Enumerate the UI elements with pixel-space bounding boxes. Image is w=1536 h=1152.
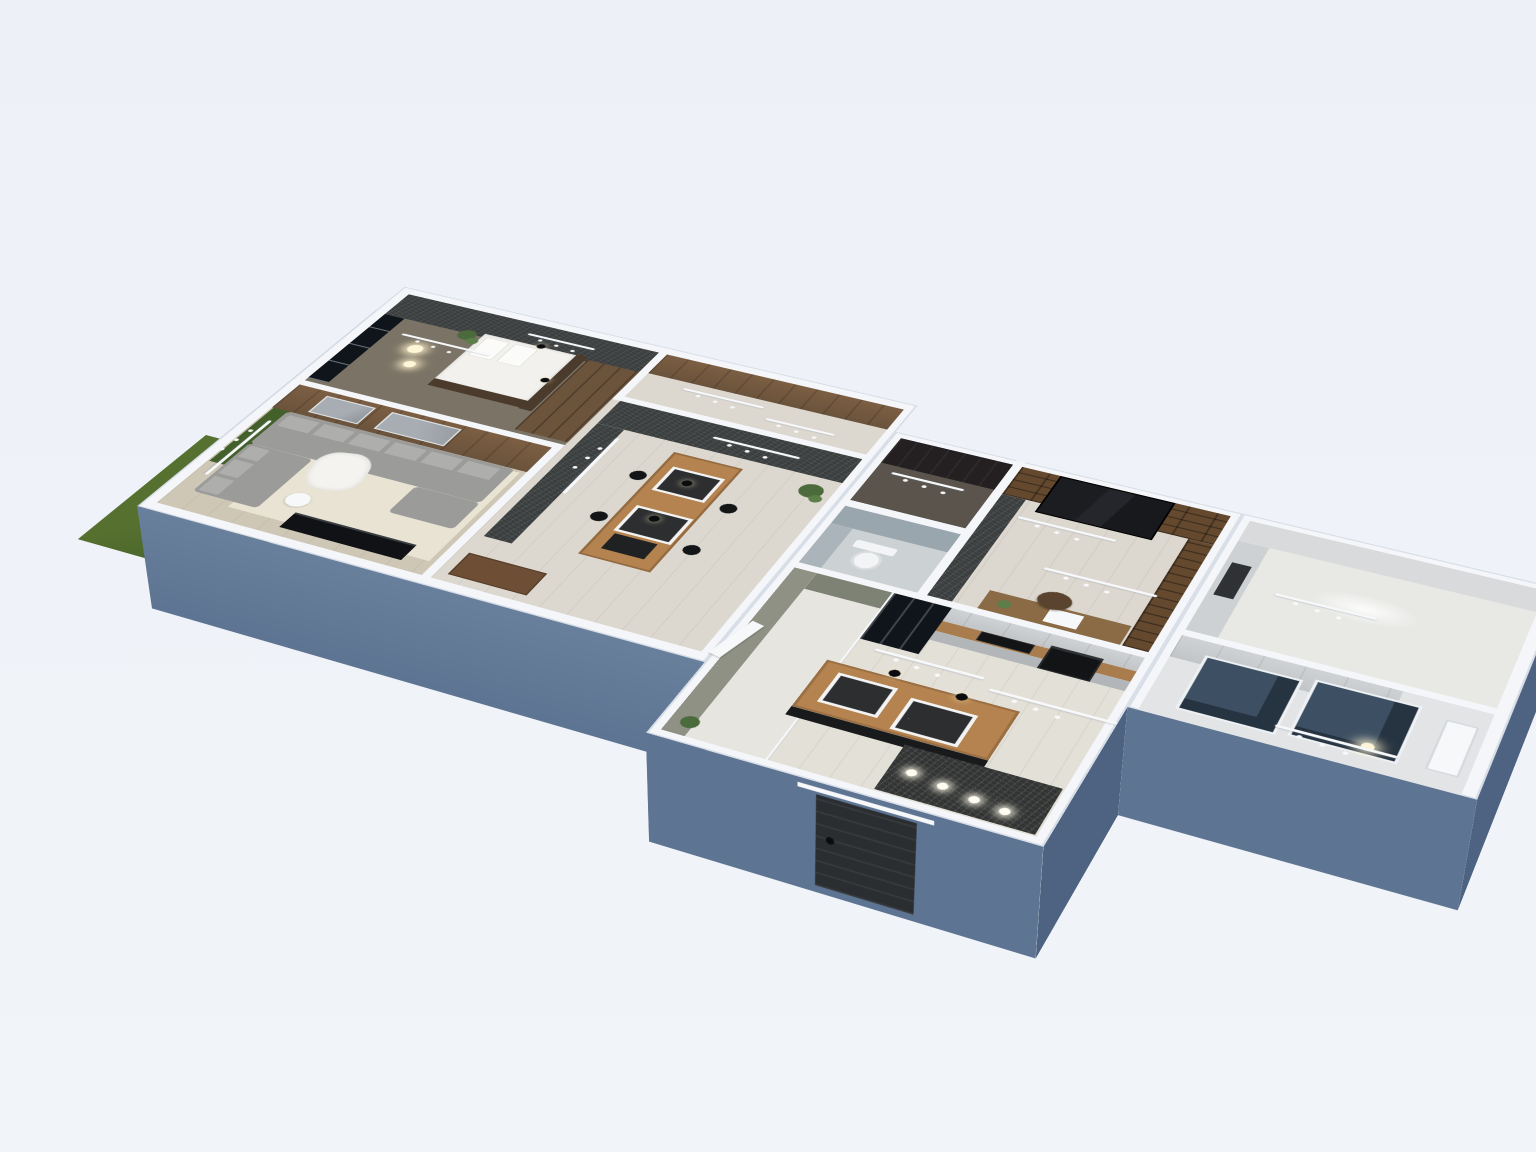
front-door[interactable] (815, 794, 917, 915)
render-viewport[interactable] (0, 0, 1536, 1152)
scene-3d (0, 177, 1536, 1152)
front-door-handle (826, 836, 834, 845)
exterior-wall-west-kitchen (646, 662, 706, 842)
